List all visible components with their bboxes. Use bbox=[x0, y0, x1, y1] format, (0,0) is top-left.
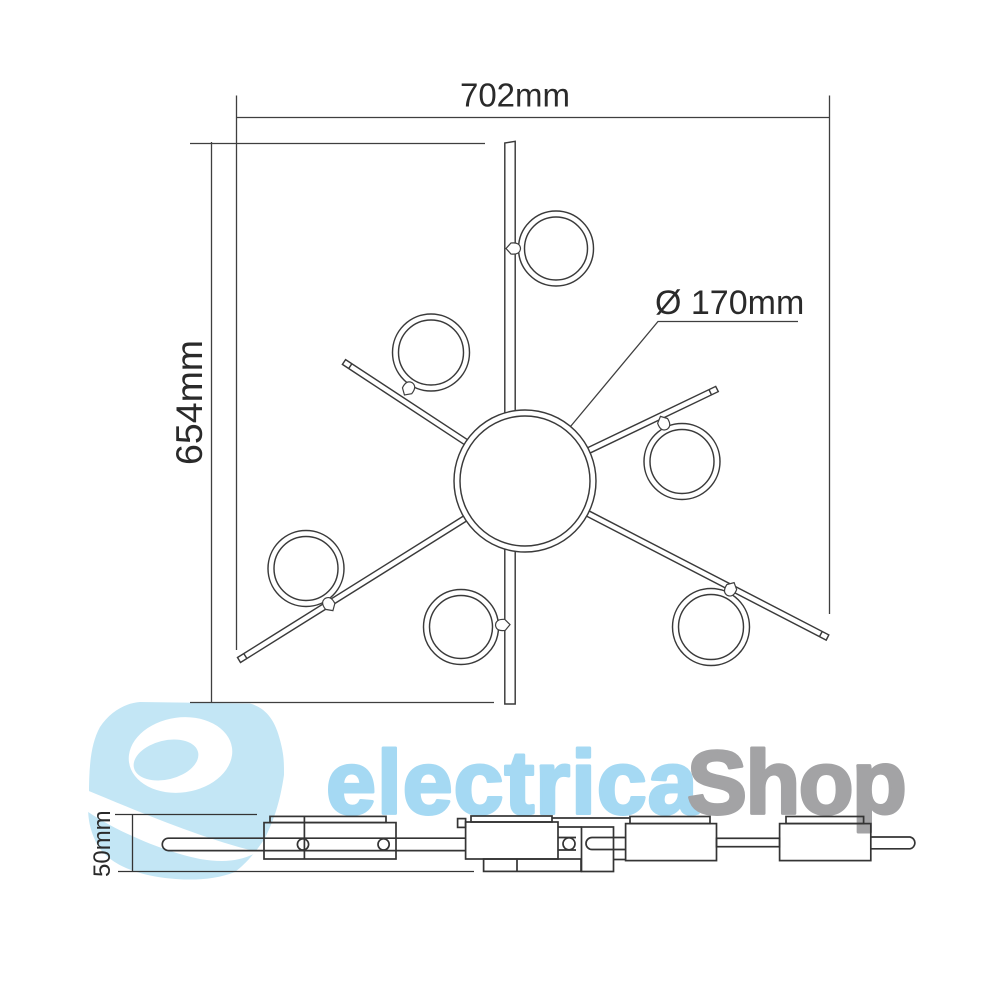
svg-text:Ø 170mm: Ø 170mm bbox=[655, 284, 804, 322]
svg-text:50mm: 50mm bbox=[89, 810, 116, 877]
svg-text:654mm: 654mm bbox=[168, 340, 210, 465]
svg-text:702mm: 702mm bbox=[460, 77, 570, 114]
